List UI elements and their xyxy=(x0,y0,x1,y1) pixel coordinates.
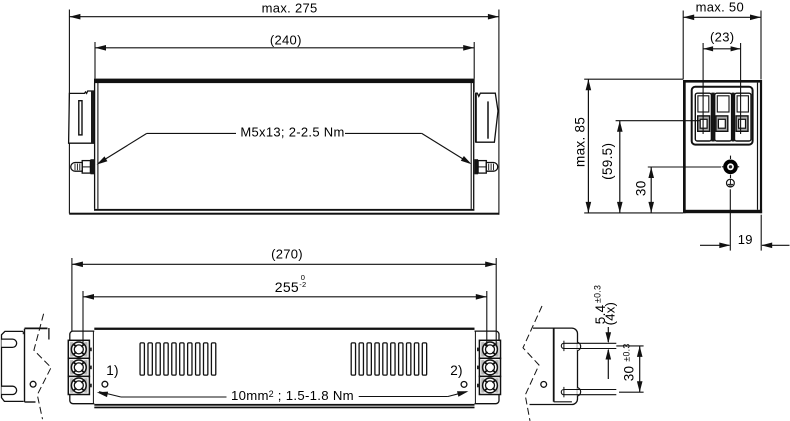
svg-text:-2: -2 xyxy=(299,280,306,289)
svg-text:(59.5): (59.5) xyxy=(600,143,615,180)
svg-text:max. 50: max. 50 xyxy=(696,0,744,15)
svg-text:(4x): (4x) xyxy=(602,302,617,326)
svg-text:(23): (23) xyxy=(710,29,734,44)
svg-text:(270): (270) xyxy=(271,246,303,261)
svg-text:M5x13; 2-2.5 Nm: M5x13; 2-2.5 Nm xyxy=(240,125,344,140)
svg-text:; 1.5-1.8 Nm: ; 1.5-1.8 Nm xyxy=(278,388,354,403)
svg-text:2: 2 xyxy=(269,389,274,399)
svg-text:19: 19 xyxy=(738,232,753,247)
svg-text:1): 1) xyxy=(106,363,119,378)
svg-text:(240): (240) xyxy=(270,33,302,48)
svg-text:2): 2) xyxy=(450,363,463,378)
svg-text:10mm: 10mm xyxy=(231,388,269,403)
svg-text:30: 30 xyxy=(633,180,648,196)
svg-text:255: 255 xyxy=(275,279,299,295)
svg-text:max. 275: max. 275 xyxy=(262,0,318,15)
svg-text:max. 85: max. 85 xyxy=(572,117,587,167)
svg-text:30±0.3: 30±0.3 xyxy=(621,343,636,381)
